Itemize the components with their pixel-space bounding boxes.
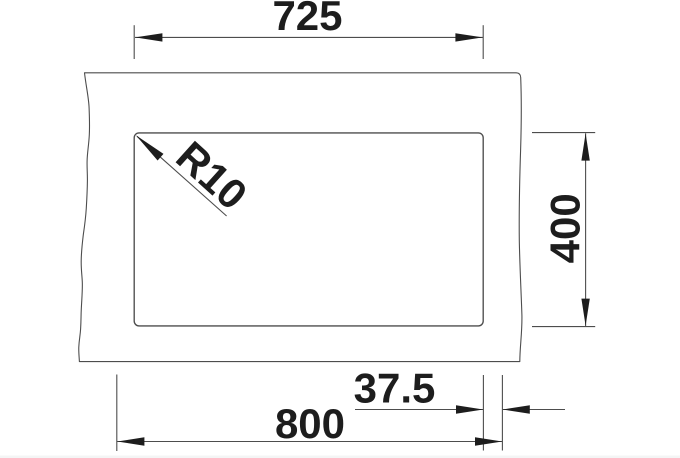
svg-text:800: 800 [275, 400, 345, 447]
svg-text:400: 400 [541, 193, 588, 263]
svg-text:37.5: 37.5 [354, 364, 436, 411]
svg-text:725: 725 [272, 0, 342, 39]
